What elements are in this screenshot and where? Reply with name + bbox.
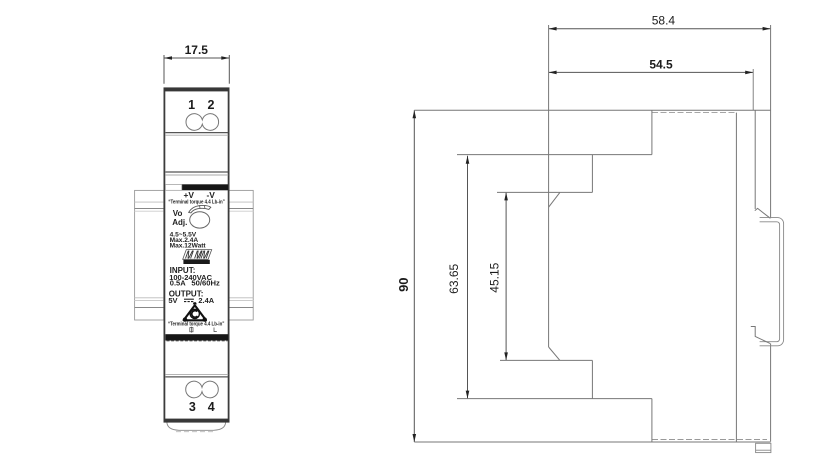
svg-text:“Terminal torque 4.4 Lb-in”: “Terminal torque 4.4 Lb-in” bbox=[168, 199, 225, 205]
svg-text:4: 4 bbox=[208, 400, 215, 414]
svg-text:-V: -V bbox=[207, 190, 216, 200]
svg-text:63.65: 63.65 bbox=[447, 263, 461, 293]
svg-text:MEAN WELL: MEAN WELL bbox=[185, 260, 209, 264]
svg-text:17.5: 17.5 bbox=[185, 43, 209, 57]
svg-text:90: 90 bbox=[396, 277, 411, 291]
svg-text:“Terminal torque 4.4 Lb-in”: “Terminal torque 4.4 Lb-in” bbox=[168, 322, 225, 328]
svg-text:50/60Hz: 50/60Hz bbox=[191, 279, 220, 288]
svg-text:Vo: Vo bbox=[173, 209, 183, 218]
svg-text:Adj.: Adj. bbox=[172, 218, 187, 227]
svg-text:Max.12Watt: Max.12Watt bbox=[170, 242, 207, 249]
svg-text:2.4A: 2.4A bbox=[198, 296, 214, 305]
svg-text:5V: 5V bbox=[168, 296, 177, 305]
svg-text:2: 2 bbox=[208, 98, 215, 112]
svg-text:1: 1 bbox=[188, 98, 195, 112]
svg-text:45.15: 45.15 bbox=[487, 262, 501, 292]
svg-text:58.4: 58.4 bbox=[652, 14, 676, 28]
svg-text:3: 3 bbox=[189, 400, 196, 414]
svg-text:54.5: 54.5 bbox=[649, 57, 673, 71]
svg-text:0.5A: 0.5A bbox=[170, 279, 186, 288]
svg-text:+V: +V bbox=[183, 190, 194, 200]
